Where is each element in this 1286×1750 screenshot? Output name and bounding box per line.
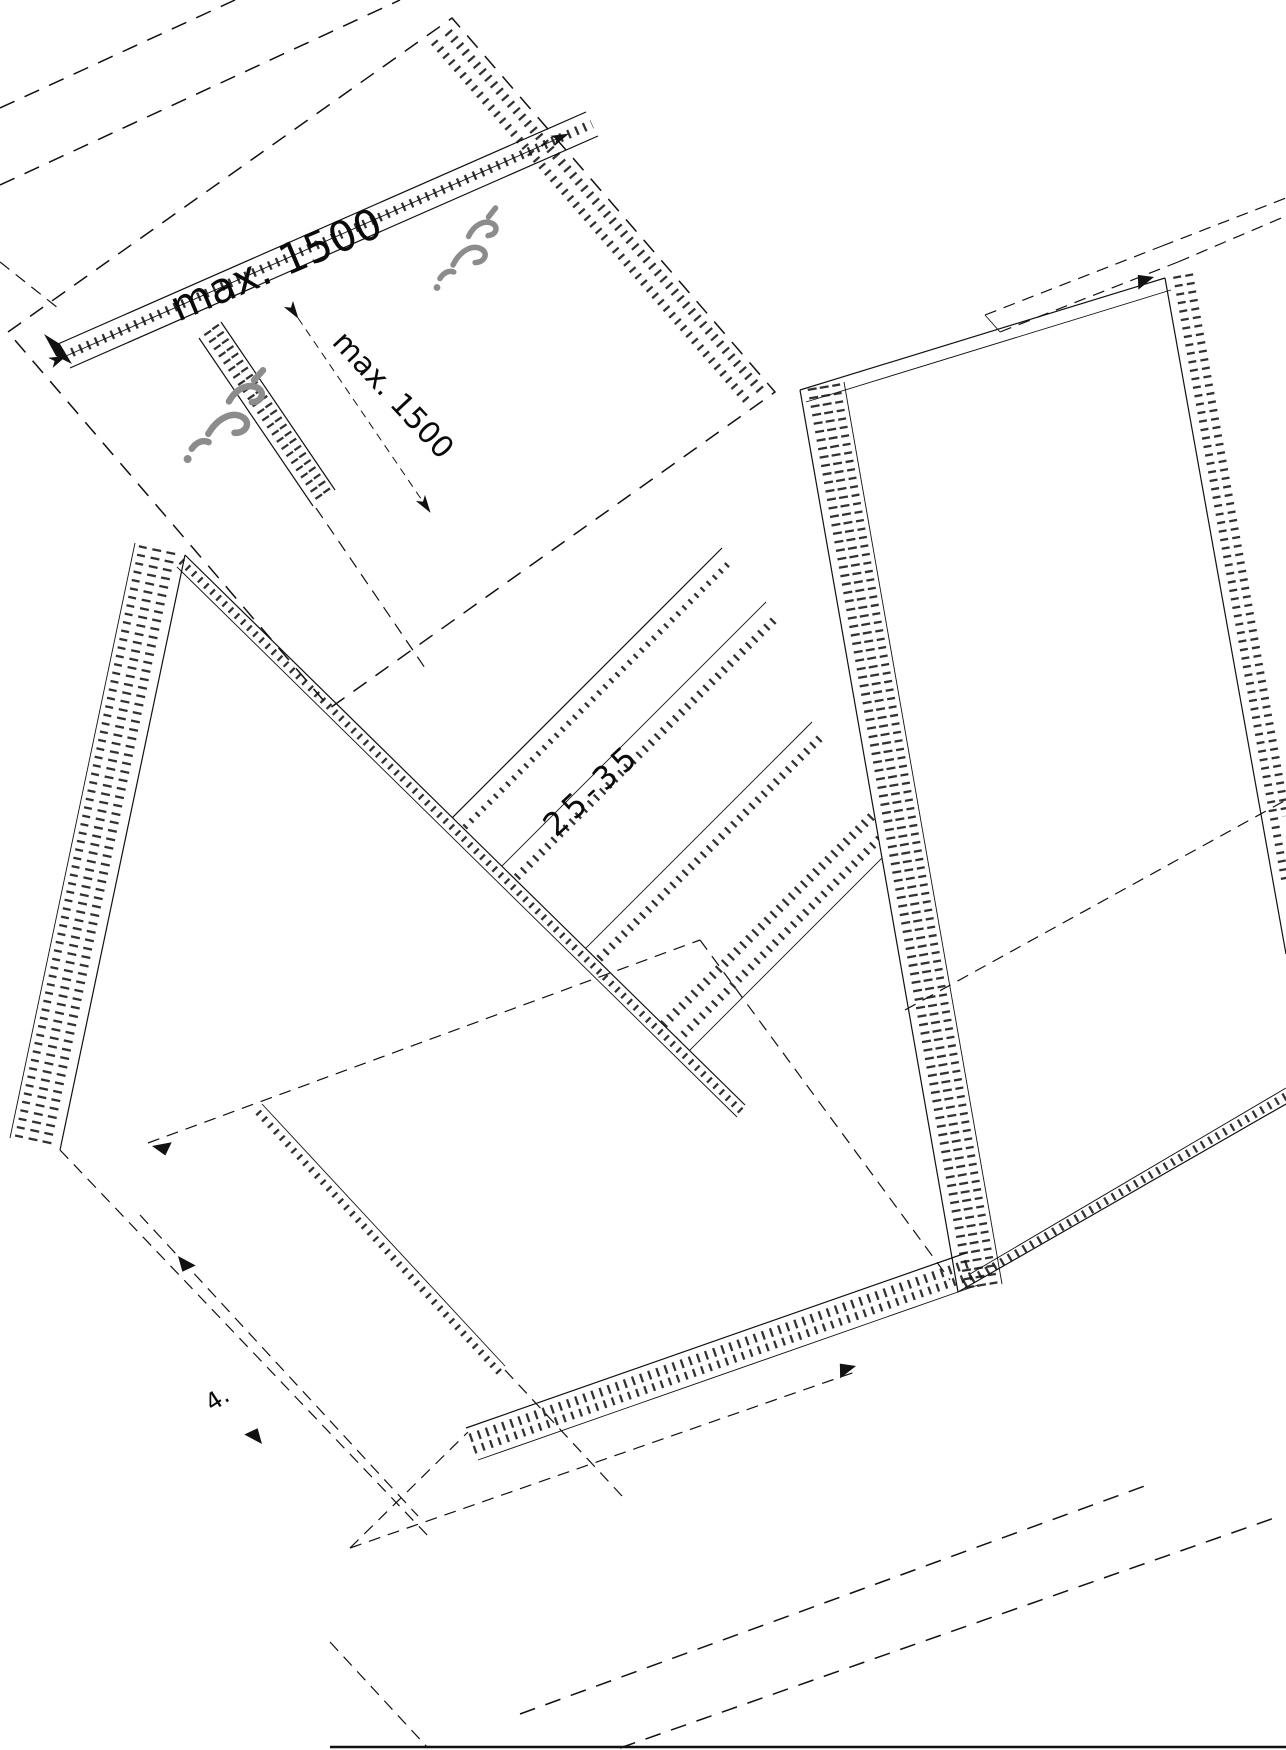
bottom-dashed-line xyxy=(330,1642,428,1748)
walkboard-hatching xyxy=(215,326,329,494)
bottom-dashed-line xyxy=(520,1484,1150,1714)
board-span-dimension-label: max. 1500 xyxy=(163,198,389,331)
bottom-dashed-line xyxy=(620,1516,1280,1748)
right-panel-face xyxy=(800,278,1286,1292)
technical-drawing: 25-35 xyxy=(0,0,1286,1750)
panel-edge-dashed xyxy=(505,1370,622,1496)
screw-fastener-icon xyxy=(418,208,511,292)
purlin-dashed-line xyxy=(0,0,400,185)
top-left-assembly: max. 1500 max. 1500 xyxy=(0,0,775,708)
board-end-cap xyxy=(44,334,72,364)
screw-fastener-icon xyxy=(171,370,277,463)
panel-overlap-annotation: 25-35 xyxy=(536,736,648,844)
purlin-end-line xyxy=(985,315,1000,332)
roof-area-dashed-outline xyxy=(8,18,775,708)
walkboard-dashed-extension xyxy=(316,508,425,668)
purlin-dashed-line xyxy=(1162,198,1286,246)
left-panel xyxy=(10,543,950,1545)
board-gap-dimension-label: max. 1500 xyxy=(325,325,460,466)
purlin-dashed-line xyxy=(1178,216,1286,262)
arrowhead-icon xyxy=(244,1425,267,1448)
right-panel xyxy=(800,274,1286,1292)
purlin-dashed-line xyxy=(0,262,58,308)
detail-number-label: 4. xyxy=(200,1381,234,1417)
